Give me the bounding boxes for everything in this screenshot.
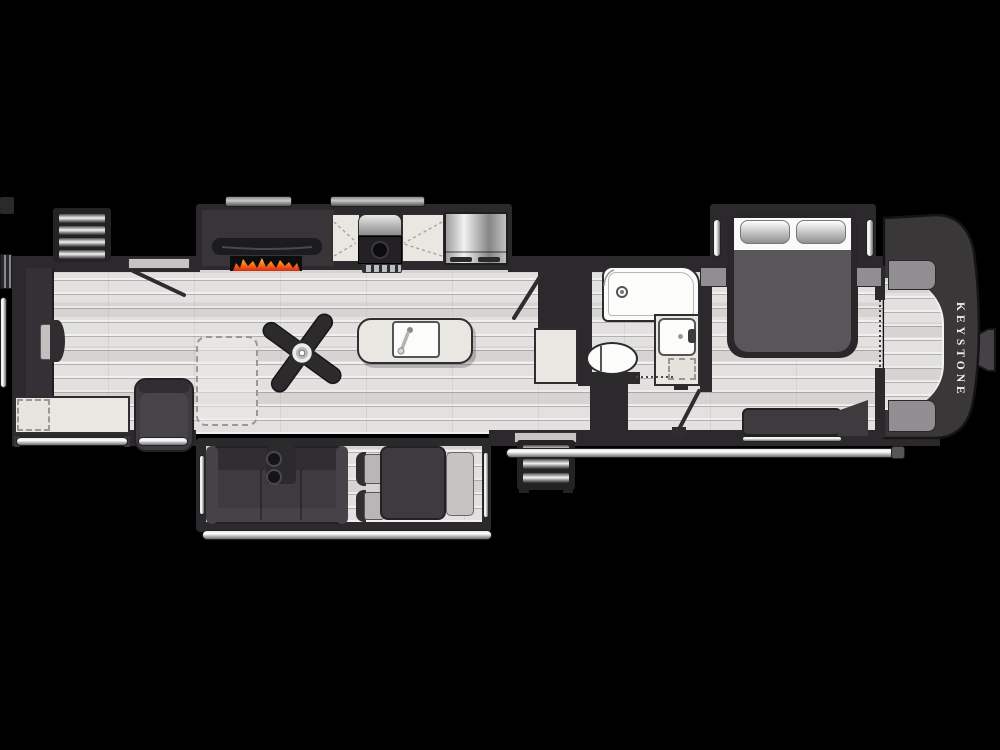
pillow xyxy=(796,220,846,244)
rear-vertical-rail xyxy=(0,297,7,388)
toilet-seat-line xyxy=(600,346,602,371)
rear-slide-rail xyxy=(16,437,128,446)
cupholder-icon xyxy=(266,469,282,485)
wardrobe-wall-bottom xyxy=(875,368,885,438)
bedroom-bench xyxy=(742,408,842,436)
cupholder-icon xyxy=(266,451,282,467)
sofa-seam xyxy=(260,470,262,520)
kitchen-counter-right xyxy=(402,214,444,262)
sofa-front-edge xyxy=(212,508,342,522)
step-foot xyxy=(563,488,573,493)
refrigerator-door-split xyxy=(444,251,508,253)
step-foot xyxy=(519,488,529,493)
slideout-awning-bar xyxy=(202,530,492,540)
slide-topper xyxy=(330,196,425,207)
exterior-stub xyxy=(0,197,14,214)
bedroom-corner-cabinet xyxy=(700,267,727,287)
kitchen-counter-left xyxy=(332,214,360,262)
awning-rail-endcap xyxy=(891,446,905,459)
rear-door-threshold xyxy=(128,258,190,269)
pantry xyxy=(538,270,578,328)
rv-floorplan: KEYSTONE xyxy=(0,0,1000,750)
step-tread xyxy=(59,238,105,247)
dinette-bench xyxy=(446,452,474,516)
flame-icon xyxy=(230,256,302,271)
sofa-seam xyxy=(300,470,302,520)
burner-icon xyxy=(371,241,389,259)
optional-furniture-dashed xyxy=(196,336,258,426)
front-closet-floor xyxy=(884,278,944,410)
range-knobs xyxy=(362,264,402,273)
awning-rail xyxy=(506,448,896,458)
sofa-armrest xyxy=(336,446,348,524)
vanity-faucet-icon xyxy=(688,329,696,343)
brand-label: KEYSTONE xyxy=(946,300,974,400)
pantry-cabinet xyxy=(534,328,578,384)
closet-shelf xyxy=(888,400,936,432)
refrigerator-handle xyxy=(478,257,500,262)
optional-appliance-dashed xyxy=(17,399,50,431)
pillow xyxy=(740,220,790,244)
sofa-armrest xyxy=(206,446,218,524)
bath-cabinet-block xyxy=(590,384,628,432)
bedroom-corner-cabinet xyxy=(856,267,882,287)
desk-chair-back xyxy=(50,320,65,362)
refrigerator-handle xyxy=(450,257,472,262)
slide-topper xyxy=(225,196,292,207)
fireplace xyxy=(230,256,302,271)
range-hood xyxy=(358,214,402,236)
dinette-table xyxy=(380,446,446,520)
exterior-ladder xyxy=(0,254,12,289)
slide-rail-left xyxy=(199,455,205,515)
step-tread xyxy=(59,214,105,223)
slide-rail-right xyxy=(483,452,489,518)
vanity-faucet-dot xyxy=(678,334,683,339)
showerhead-dot xyxy=(620,290,624,294)
bench-rail xyxy=(742,436,842,442)
nightstand-left xyxy=(713,219,721,257)
recliner-back xyxy=(138,380,190,393)
step-tread xyxy=(59,226,105,235)
step-tread xyxy=(59,250,105,259)
bed-mattress xyxy=(734,250,851,352)
nightstand-right xyxy=(866,219,874,257)
closet-shelf xyxy=(888,260,936,290)
vanity-cabinet-dashed xyxy=(668,358,696,380)
tv xyxy=(212,238,322,255)
island-sink xyxy=(392,321,440,358)
rear-slide-rail xyxy=(138,437,188,446)
toilet xyxy=(586,342,638,375)
step-tread xyxy=(523,473,569,483)
step-tread xyxy=(523,459,569,469)
